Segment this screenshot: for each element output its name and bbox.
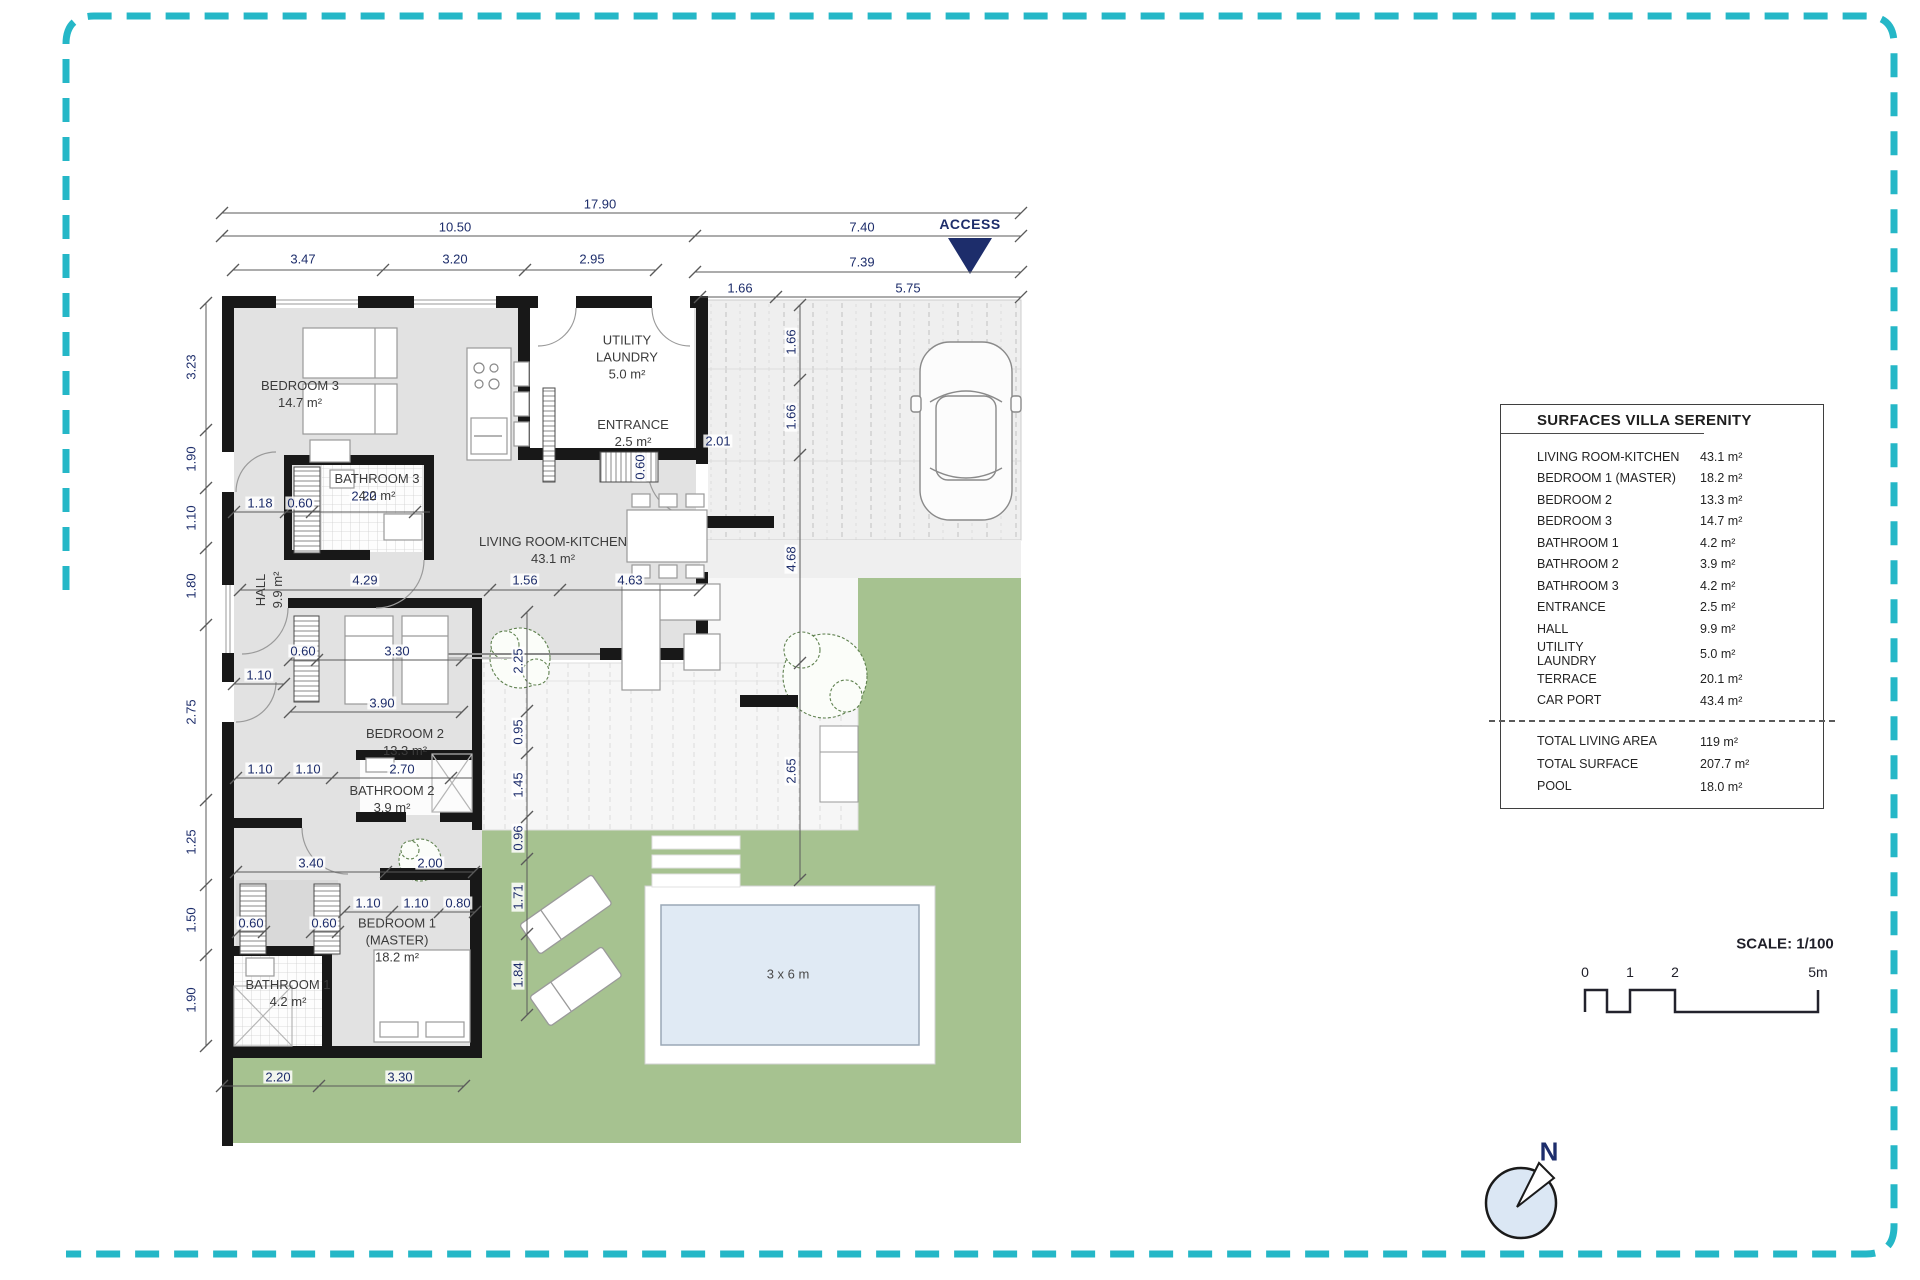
table-row-value: 4.2 m² [1700,536,1823,550]
table-row-label: BEDROOM 1 (MASTER) [1501,471,1700,485]
table-row-value: 2.5 m² [1700,600,1823,614]
dimension-label: 1.10 [245,763,274,776]
table-row-label: POOL [1501,779,1700,793]
dimension-label: 0.96 [512,823,525,852]
dimension-label: 1.56 [510,574,539,587]
dimension-label: 1.10 [293,763,322,776]
dimension-label: 3.47 [288,253,317,266]
dimension-label: 1.84 [512,960,525,989]
dimension-label: 1.10 [244,669,273,682]
dimension-label: 2.75 [185,697,198,726]
table-row-value: 3.9 m² [1700,557,1823,571]
room-label-entrance: ENTRANCE2.5 m² [597,417,669,451]
dimension-label: 1.50 [185,905,198,934]
table-row-value: 43.1 m² [1700,450,1823,464]
table-row-value: 43.4 m² [1700,694,1823,708]
table-row: LIVING ROOM-KITCHEN43.1 m² [1501,446,1823,468]
table-row-label: UTILITY LAUNDRY [1501,640,1700,669]
room-label-utility: UTILITYLAUNDRY5.0 m² [596,333,658,384]
table-row-value: 5.0 m² [1700,647,1823,661]
dimension-label: 10.50 [437,221,474,234]
table-row: ENTRANCE2.5 m² [1501,597,1823,619]
surfaces-table-divider [1489,720,1835,722]
dimension-label: 3.30 [382,645,411,658]
dimension-label: 1.10 [353,897,382,910]
room-label-bedroom2: BEDROOM 213.3 m² [366,726,444,760]
scale-tick-label: 5m [1808,964,1827,980]
pool-size-label: 3 x 6 m [767,967,810,984]
dimension-label: 0.60 [285,497,314,510]
surfaces-table-title: SURFACES VILLA SERENITY [1501,405,1823,434]
room-label-bathroom2: BATHROOM 23.9 m² [350,783,435,817]
table-row-label: ENTRANCE [1501,600,1700,614]
dimension-label: 3.20 [440,253,469,266]
table-row-value: 4.2 m² [1700,579,1823,593]
garden-bench [820,726,858,802]
dimension-label: 4.63 [615,574,644,587]
table-row-label: CAR PORT [1501,693,1700,707]
table-row: BATHROOM 23.9 m² [1501,554,1823,576]
room-label-bedroom1: BEDROOM 1(MASTER)18.2 m² [358,916,436,967]
dimension-label: 0.60 [236,917,265,930]
dimension-label: 1.66 [785,327,798,356]
table-row-value: 18.2 m² [1700,471,1823,485]
table-row-value: 14.7 m² [1700,514,1823,528]
table-row-value: 20.1 m² [1700,672,1823,686]
dimension-label: 3.23 [185,352,198,381]
dimension-label: 1.66 [785,402,798,431]
dimension-label: 1.10 [185,503,198,532]
table-row: TOTAL LIVING AREA119 m² [1501,730,1823,753]
kitchen-counter [543,388,555,482]
dimension-label: 5.75 [893,282,922,295]
dimension-label: 1.71 [512,882,525,911]
table-row: CAR PORT43.4 m² [1501,690,1823,712]
access-arrow [948,238,992,274]
table-row: BATHROOM 14.2 m² [1501,532,1823,554]
room-label-bedroom3: BEDROOM 314.7 m² [261,378,339,412]
north-label: N [1540,1137,1559,1168]
scale-tick-label: 0 [1581,964,1589,980]
dimension-label: 1.25 [185,827,198,856]
surfaces-table: SURFACES VILLA SERENITY LIVING ROOM-KITC… [1500,404,1824,809]
dimension-label: 0.60 [309,917,338,930]
dimension-label: 2.01 [703,435,732,448]
entrance-steps [600,452,658,482]
table-row: POOL18.0 m² [1501,775,1823,798]
dimension-label: 2.25 [512,646,525,675]
table-row-value: 9.9 m² [1700,622,1823,636]
scale-tick-label: 1 [1626,964,1634,980]
access-label: ACCESS [939,216,1000,232]
dimension-label: 3.90 [367,697,396,710]
dimension-label: 2.00 [415,857,444,870]
dimension-label: 2.65 [785,756,798,785]
table-row: BATHROOM 34.2 m² [1501,575,1823,597]
table-row: BEDROOM 213.3 m² [1501,489,1823,511]
dimension-label: 0.80 [443,897,472,910]
dimension-label: 1.80 [185,571,198,600]
table-row-label: LIVING ROOM-KITCHEN [1501,450,1700,464]
table-row: TOTAL SURFACE207.7 m² [1501,753,1823,776]
table-row-value: 119 m² [1700,735,1823,749]
table-row-value: 18.0 m² [1700,780,1823,794]
room-label-hall: HALL9.9 m² [253,572,287,609]
dimension-label: 1.45 [512,770,525,799]
table-row-label: TOTAL LIVING AREA [1501,734,1700,748]
surfaces-table-rows: LIVING ROOM-KITCHEN43.1 m²BEDROOM 1 (MAS… [1501,434,1823,711]
dimension-label: 7.39 [847,256,876,269]
dimension-label: 4.29 [350,574,379,587]
dimension-label: 1.90 [185,444,198,473]
table-row-label: TERRACE [1501,672,1700,686]
table-row-label: BATHROOM 1 [1501,536,1700,550]
dimension-label: 0.60 [634,452,647,481]
table-row-label: TOTAL SURFACE [1501,757,1700,771]
dimension-label: 2.70 [387,763,416,776]
room-label-bathroom1: BATHROOM 14.2 m² [246,977,331,1011]
table-row-value: 13.3 m² [1700,493,1823,507]
garden-steps [652,836,740,887]
dimension-label: 1.18 [245,497,274,510]
dimension-label: 7.40 [847,221,876,234]
table-row: HALL9.9 m² [1501,618,1823,640]
dimension-label: 3.40 [296,857,325,870]
dimension-label: 3.30 [385,1071,414,1084]
table-row: TERRACE20.1 m² [1501,668,1823,690]
dimension-label: 4.68 [785,544,798,573]
table-row-label: HALL [1501,622,1700,636]
car-icon [911,342,1021,520]
scale-tick-label: 2 [1671,964,1679,980]
dimension-label: 0.60 [288,645,317,658]
surfaces-table-totals: TOTAL LIVING AREA119 m²TOTAL SURFACE207.… [1501,730,1823,798]
table-row: BEDROOM 1 (MASTER)18.2 m² [1501,468,1823,490]
table-row: UTILITY LAUNDRY5.0 m² [1501,640,1823,669]
dimension-label: 0.95 [512,717,525,746]
dimension-label: 1.66 [725,282,754,295]
table-row-label: BEDROOM 2 [1501,493,1700,507]
dimension-label: 1.90 [185,985,198,1014]
table-row-label: BATHROOM 2 [1501,557,1700,571]
table-row-value: 207.7 m² [1700,757,1823,771]
table-row: BEDROOM 314.7 m² [1501,511,1823,533]
dimension-label: 2.95 [577,253,606,266]
table-row-label: BATHROOM 3 [1501,579,1700,593]
scale-title: SCALE: 1/100 [1736,936,1834,953]
table-row-label: BEDROOM 3 [1501,514,1700,528]
dimension-label: 1.10 [401,897,430,910]
room-label-living: LIVING ROOM-KITCHEN43.1 m² [479,534,627,568]
dimension-label: 17.90 [582,198,619,211]
dimension-label: 2.20 [263,1071,292,1084]
room-label-bathroom3: BATHROOM 34.2 m² [335,471,420,505]
